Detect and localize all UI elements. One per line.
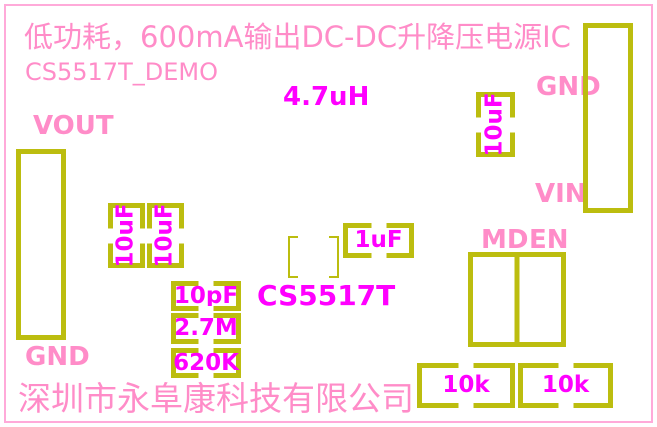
output-cap-1-value: 10uF [115, 203, 138, 267]
vin-label: VIN [535, 181, 587, 207]
gnd-left-label: GND [25, 344, 90, 370]
feedback-cap-value: 10pF [174, 285, 238, 308]
input-cap-value: 10uF [484, 92, 507, 156]
bypass-cap-value: 1uF [354, 229, 402, 252]
gnd-vin-pad [583, 23, 633, 213]
company-name: 深圳市永阜康科技有限公司 [18, 372, 414, 420]
pcb-silkscreen-view: 低功耗，600mA输出DC-DC升降压电源IC CS5517T_DEMO 4.7… [0, 0, 657, 427]
vout-label: VOUT [33, 113, 114, 139]
bypass-cap-footprint: 1uF [343, 223, 414, 258]
md-en-jumper-pads [468, 252, 566, 347]
board-title: 低功耗，600mA输出DC-DC升降压电源IC [24, 22, 571, 54]
output-cap-2-value: 10uF [154, 203, 177, 267]
feedback-res-upper-value: 2.7M [174, 317, 238, 340]
chip-bracket-left [288, 236, 298, 278]
pulldown-res-en-footprint: 10k [518, 363, 613, 408]
chip-name-label: CS5517T [257, 279, 395, 312]
output-cap-1-footprint: 10uF [108, 203, 145, 268]
jumper-pad-divider [515, 257, 520, 342]
inductor-value-label: 4.7uH [283, 84, 369, 110]
feedback-res-upper-footprint: 2.7M [171, 313, 241, 344]
md-label: MD [481, 227, 528, 253]
pulldown-res-en-value: 10k [542, 374, 589, 397]
pulldown-res-md-value: 10k [442, 374, 489, 397]
chip-bracket-right [329, 236, 339, 278]
vout-pad [16, 149, 66, 340]
board-subtitle: CS5517T_DEMO [25, 58, 218, 86]
en-label: EN [529, 227, 569, 253]
pulldown-res-md-footprint: 10k [417, 363, 515, 408]
input-cap-footprint: 10uF [476, 92, 515, 157]
feedback-cap-footprint: 10pF [171, 281, 241, 311]
output-cap-2-footprint: 10uF [147, 203, 184, 268]
